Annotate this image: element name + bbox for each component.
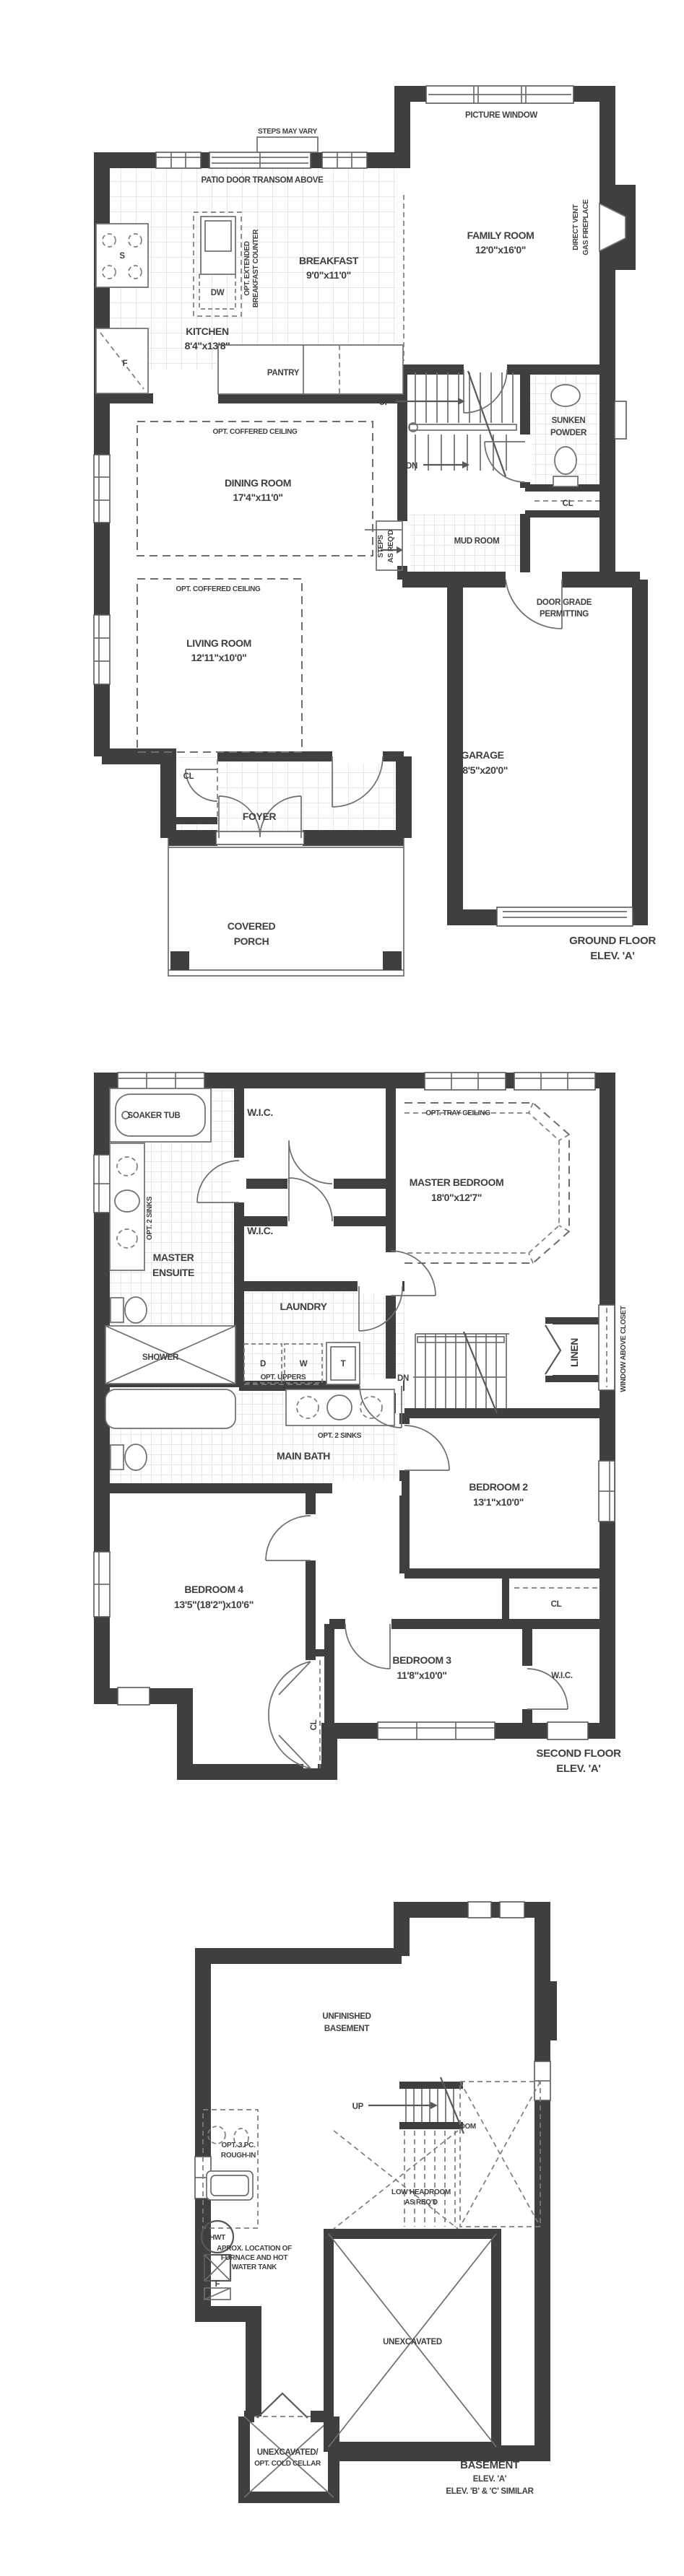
- master-ensuite-label-2: ENSUITE: [152, 1267, 194, 1278]
- steps-req-label-2: AS REQ'D: [387, 530, 395, 563]
- powder-window: [615, 401, 626, 439]
- opt-2-sinks-ensuite-label: OPT. 2 SINKS: [146, 1196, 154, 1240]
- dryer-label: D: [260, 1360, 266, 1368]
- basement-caption-1: BASEMENT: [460, 2459, 519, 2471]
- bedroom2-closet-label: CL: [551, 1600, 562, 1609]
- bedroom4-dim: 13'5"(18'2")x10'6": [174, 1599, 254, 1610]
- dn-arrow: [462, 461, 469, 468]
- bedroom2-dim: 13'1"x10'0": [473, 1496, 524, 1508]
- wic1-label: W.I.C.: [247, 1106, 273, 1118]
- window-above-closet-label: WINDOW ABOVE CLOSET: [620, 1306, 628, 1392]
- porch-label-1: COVERED: [228, 920, 276, 932]
- steps-may-vary-label: STEPS MAY VARY: [258, 128, 318, 136]
- cold-cellar-label-2: OPT. COLD CELLAR: [254, 2460, 321, 2468]
- low-headroom-label: LOW HEADROOM: [417, 2123, 476, 2131]
- foyer-label: FOYER: [243, 811, 277, 822]
- opt-uppers-label: OPT. UPPERS: [261, 1374, 306, 1381]
- second-floor-caption-2: ELEV. 'A': [556, 1763, 600, 1775]
- wic3-label: W.I.C.: [551, 1672, 573, 1680]
- wall-bump: [542, 1981, 557, 2040]
- dining-label: DINING ROOM: [225, 477, 291, 489]
- bedroom3-label: BEDROOM 3: [392, 1654, 451, 1666]
- second-floor-caption-1: SECOND FLOOR: [536, 1747, 621, 1760]
- ground-floor-plan: STEPS MAY VARY PATIO DOOR TRANSOM ABOVE …: [94, 86, 656, 976]
- kitchen-dim: 8'4"x13'8": [185, 340, 230, 352]
- second-floor-plan: SOAKER TUB W.I.C. W.I.C. OPT. TRAY CEILI…: [94, 1073, 628, 1775]
- low-headroom-x: [334, 2082, 540, 2229]
- door-grade-label-1: DOOR GRADE: [537, 598, 592, 607]
- covered-porch: [168, 838, 404, 976]
- breakfast-dim: 9'0"x11'0": [306, 269, 351, 281]
- breakfast-label: BREAKFAST: [299, 255, 359, 266]
- basement-plan: UNFINISHED BASEMENT UP LOW HEADROOM LOW …: [195, 1902, 557, 2497]
- cold-cellar-label-1: UNEXCAVATED/: [257, 2448, 319, 2457]
- tray-ceiling-label: OPT. TRAY CEILING: [425, 1109, 490, 1117]
- furnace-label-1: APROX. LOCATION OF: [217, 2245, 292, 2253]
- dining-room-outline: [137, 422, 373, 556]
- furnace-f-label: F: [215, 2280, 220, 2289]
- door-grade-label-2: PERMITTING: [540, 610, 589, 619]
- garage-label: GARAGE: [461, 749, 503, 761]
- linen-label: LINEN: [568, 1338, 580, 1367]
- breakfast-counter-label-2: BREAKFAST COUNTER: [252, 229, 260, 307]
- dn-label: DN: [397, 1374, 409, 1383]
- dishwasher-label: DW: [211, 289, 225, 297]
- hwt-label: HWT: [209, 2234, 225, 2242]
- laundry-label: LAUNDRY: [280, 1301, 327, 1312]
- furnace-label-3: WATER TANK: [232, 2263, 277, 2271]
- shower-label: SHOWER: [142, 1353, 179, 1362]
- stair-railing: [417, 1337, 504, 1342]
- basement-caption-2: ELEV. 'A': [473, 2475, 507, 2484]
- kitchen-label: KITCHEN: [186, 326, 229, 337]
- porch-post: [170, 951, 189, 970]
- cold-cellar-doors: [257, 2393, 308, 2418]
- fridge-label: F: [123, 359, 128, 368]
- opt-3pc-label-1: OPT. 3 PC.: [221, 2141, 256, 2149]
- basement-caption-3: ELEV. 'B' & 'C' SIMILAR: [446, 2487, 534, 2496]
- pantry-label: PANTRY: [267, 369, 300, 377]
- fireplace-label-2: GAS FIREPLACE: [582, 199, 590, 256]
- family-room-dim: 12'0"x16'0": [475, 244, 526, 256]
- bedroom2-label: BEDROOM 2: [469, 1481, 528, 1493]
- living-room-outline: [137, 579, 302, 752]
- cold-cellar-x: [244, 2416, 334, 2497]
- up-arrow: [430, 2102, 438, 2109]
- powder-label-2: POWDER: [550, 429, 587, 437]
- hall-closet-label: CL: [310, 1719, 319, 1730]
- steps-req-label-1: STEPS: [377, 535, 385, 558]
- bedroom3-dim: 11'8"x10'0": [397, 1669, 446, 1681]
- family-room-label: FAMILY ROOM: [467, 230, 534, 241]
- master-bedroom-label: MASTER BEDROOM: [410, 1176, 504, 1188]
- unfinished-label-1: UNFINISHED: [322, 2012, 371, 2021]
- powder-closet-label: CL: [563, 499, 573, 508]
- foyer-closet-label: CL: [183, 772, 194, 781]
- floor-plan-drawing: STEPS MAY VARY PATIO DOOR TRANSOM ABOVE …: [0, 0, 684, 2576]
- powder-label-1: SUNKEN: [552, 416, 586, 425]
- island: [201, 217, 235, 274]
- ground-floor-caption-2: ELEV. 'A': [590, 950, 634, 962]
- living-label: LIVING ROOM: [186, 637, 251, 649]
- patio-door-label: PATIO DOOR TRANSOM ABOVE: [202, 176, 324, 185]
- garage-dim: 18'5"x20'0": [457, 764, 508, 776]
- furnace-label-2: FURNACE AND HOT: [221, 2254, 288, 2262]
- exterior-steps: [257, 137, 318, 152]
- master-ensuite-label-1: MASTER: [153, 1252, 194, 1263]
- dn-label: DN: [406, 462, 417, 471]
- tub-t-label: T: [341, 1360, 346, 1368]
- breakfast-counter-label-1: OPT. EXTENDED: [243, 241, 251, 296]
- main-bath-label: MAIN BATH: [277, 1450, 330, 1462]
- low-headroom-req-label-2: AS REQ'D: [404, 2199, 438, 2206]
- opt-2-sinks-bath-label: OPT. 2 SINKS: [318, 1432, 362, 1440]
- second-floor-stairs: [413, 1332, 509, 1413]
- porch-post: [383, 951, 402, 970]
- up-label: UP: [352, 2103, 364, 2111]
- unfinished-label-2: BASEMENT: [324, 2025, 369, 2033]
- bath-tub: [105, 1389, 235, 1428]
- sink-label: S: [119, 252, 125, 261]
- porch-label-2: PORCH: [234, 935, 269, 947]
- pantry-counter: [218, 345, 403, 394]
- stair-railing: [410, 424, 516, 430]
- picture-window-label: PICTURE WINDOW: [465, 111, 537, 120]
- bedroom4-label: BEDROOM 4: [184, 1584, 243, 1595]
- opt-3pc-label-2: ROUGH-IN: [221, 2152, 256, 2160]
- living-opt-label: OPT. COFFERED CEILING: [176, 585, 261, 593]
- mud-room-label: MUD ROOM: [454, 537, 500, 546]
- low-headroom-req-label-1: LOW HEADROOM: [391, 2188, 451, 2196]
- dining-dim: 17'4"x11'0": [233, 492, 282, 503]
- soaker-tub-label: SOAKER TUB: [127, 1112, 180, 1120]
- ground-floor-caption-1: GROUND FLOOR: [569, 935, 656, 947]
- master-bedroom-dim: 18'0"x12'7": [431, 1192, 482, 1203]
- floor-plan-sheet: STEPS MAY VARY PATIO DOOR TRANSOM ABOVE …: [0, 0, 684, 2576]
- dining-opt-label: OPT. COFFERED CEILING: [212, 428, 298, 436]
- washer-label: W: [300, 1360, 308, 1368]
- ground-stairs: [396, 371, 516, 476]
- garage-door: [497, 907, 633, 926]
- wic2-label: W.I.C.: [247, 1225, 273, 1236]
- fireplace-label-1: DIRECT VENT: [572, 204, 580, 250]
- mud-room-tile-floor: [402, 514, 525, 580]
- up-label: UP: [379, 398, 391, 407]
- unexcavated-label: UNEXCAVATED: [383, 2338, 442, 2346]
- living-dim: 12'11"x10'0": [191, 652, 247, 663]
